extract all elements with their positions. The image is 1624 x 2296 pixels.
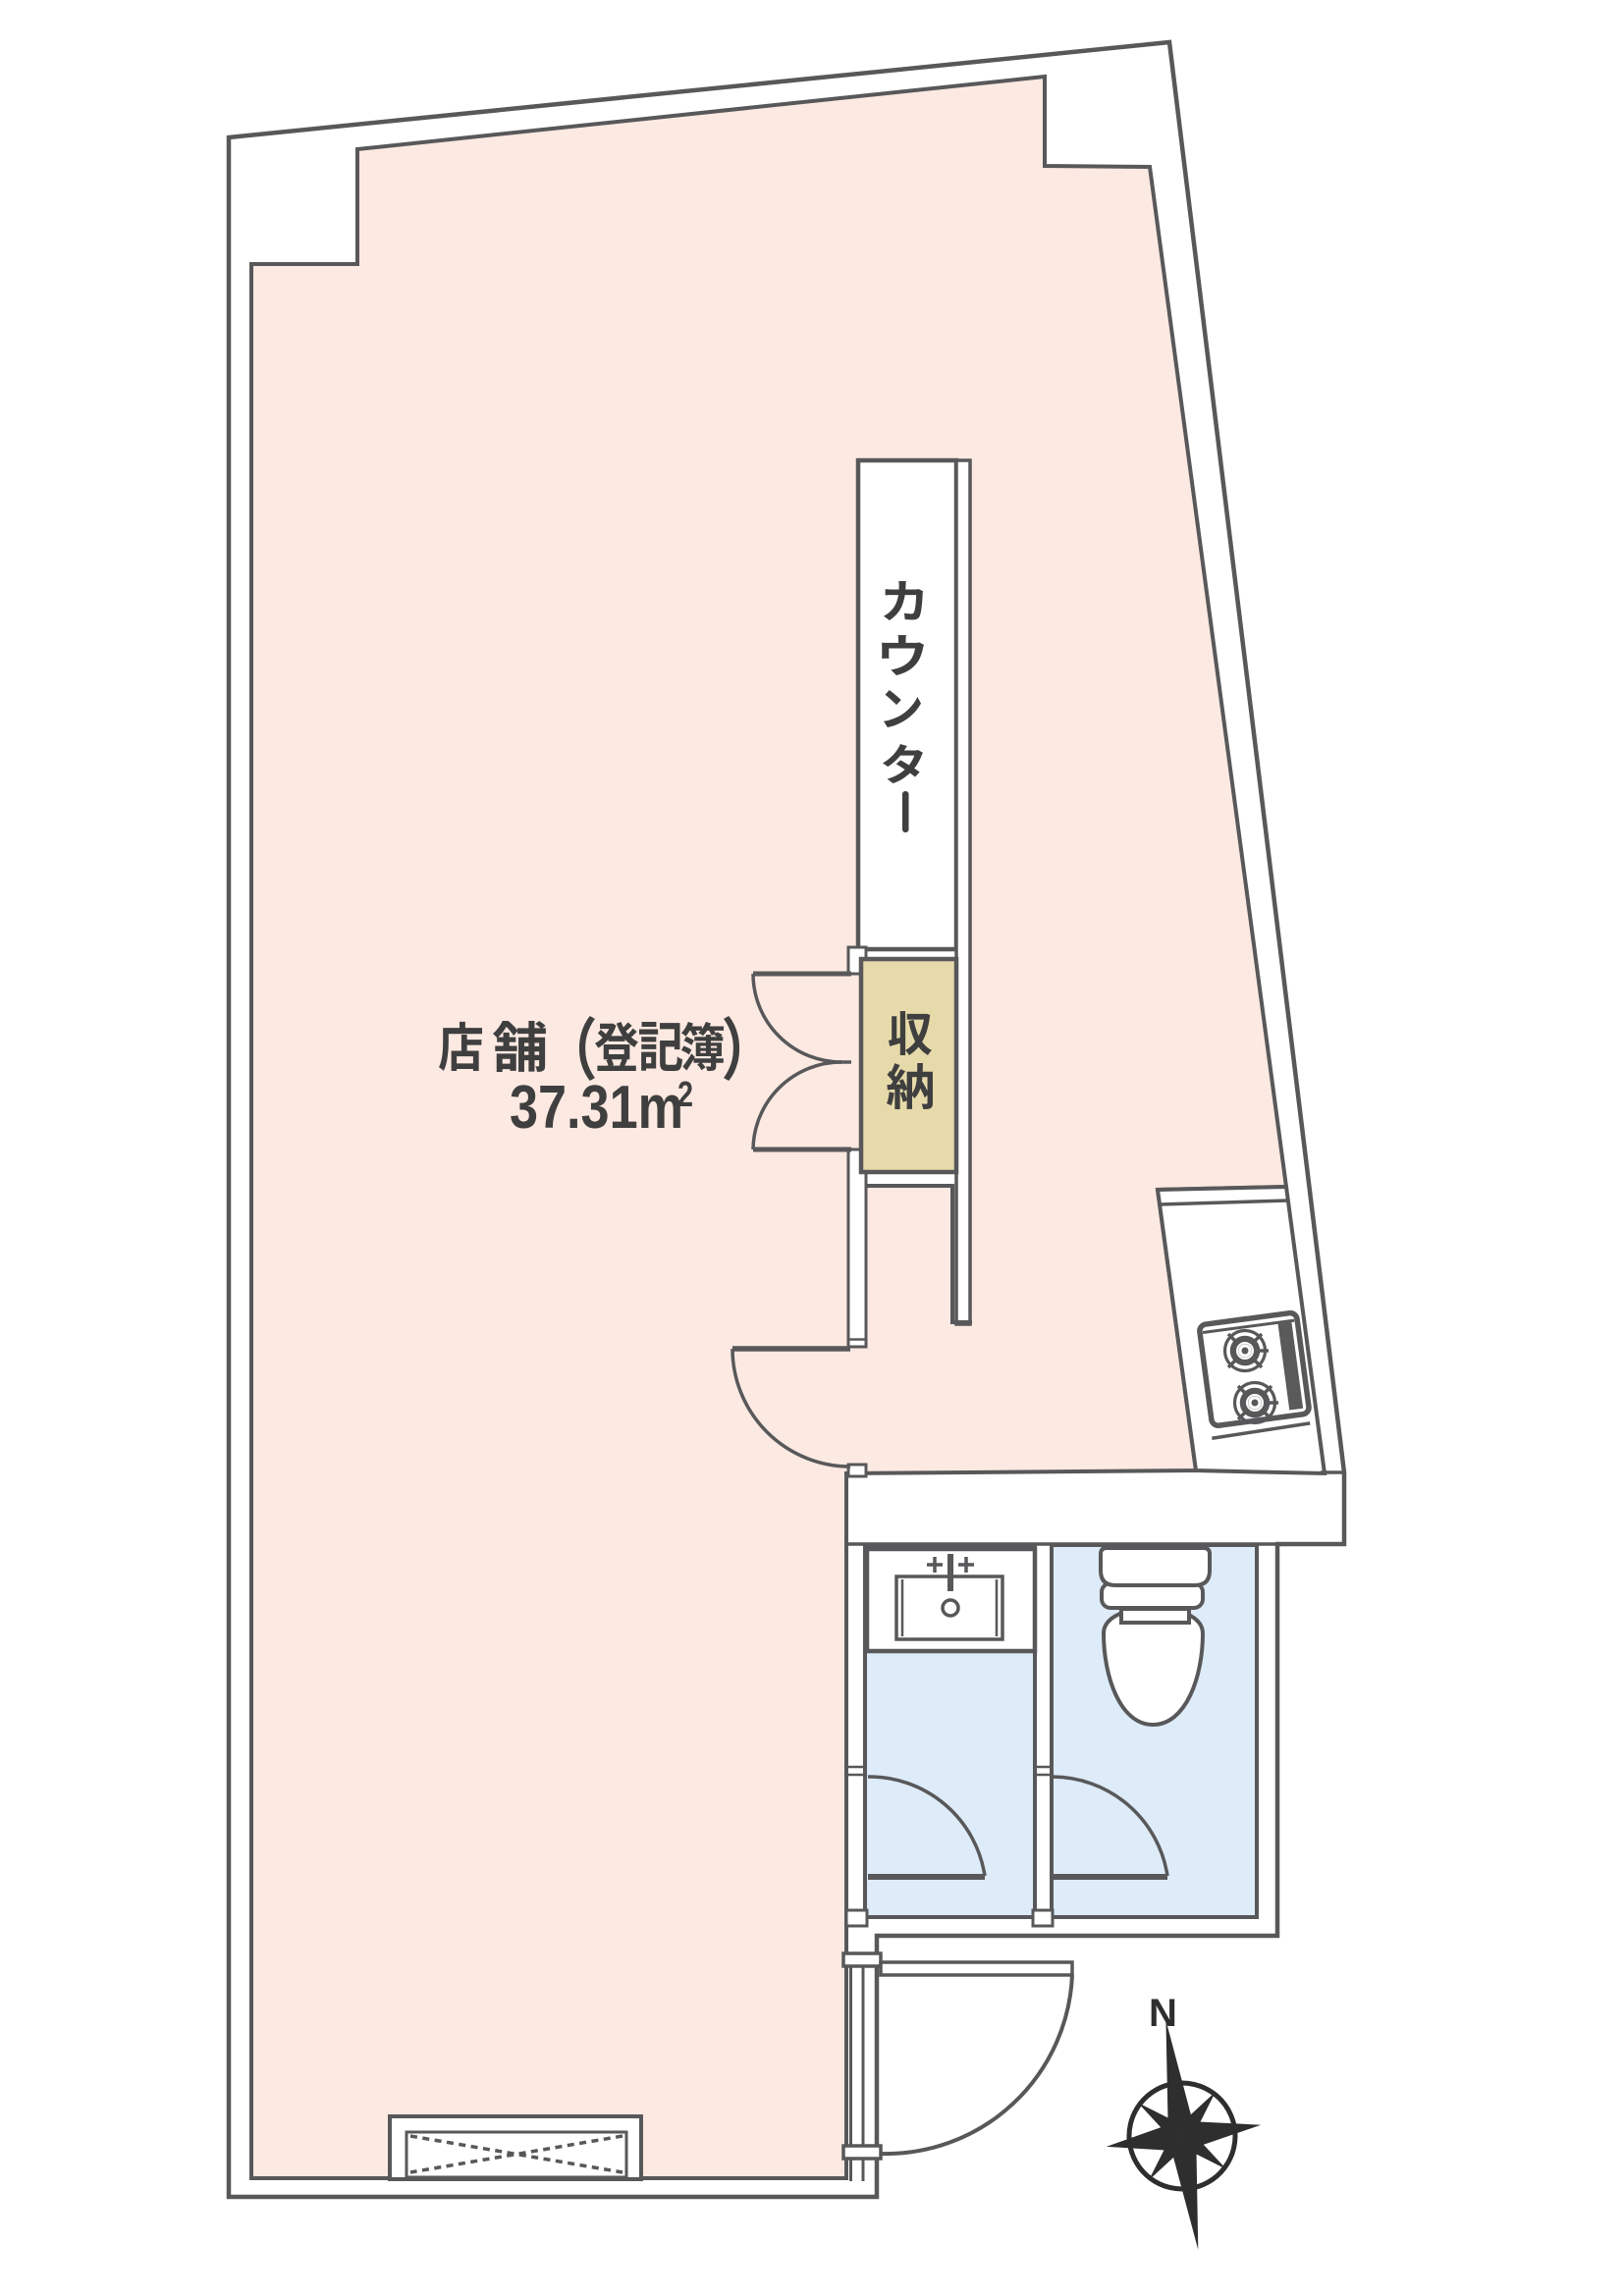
svg-text:37.31m: 37.31m <box>510 1074 683 1142</box>
svg-text:2: 2 <box>677 1074 693 1114</box>
svg-text:N: N <box>1149 1992 1177 2035</box>
